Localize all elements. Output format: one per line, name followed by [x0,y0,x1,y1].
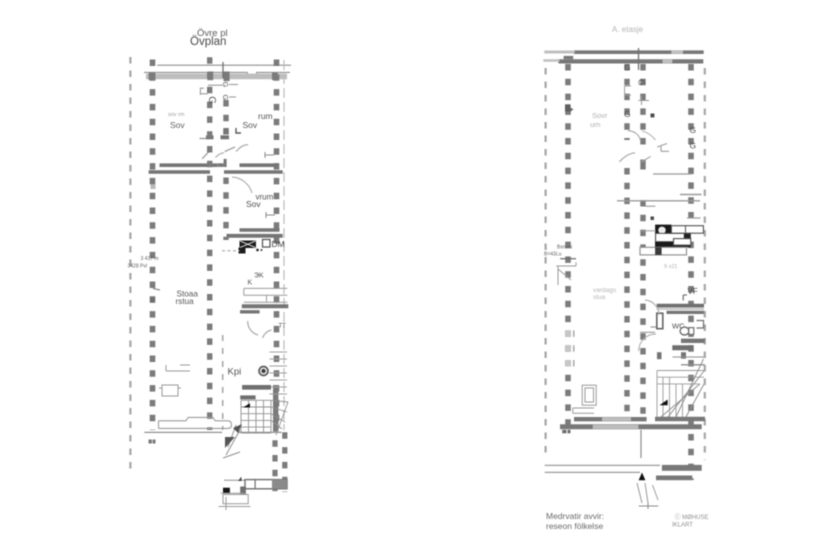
svg-text:sov rm: sov rm [168,112,185,118]
svg-text:3428 Pvl: 3428 Pvl [128,264,147,270]
svg-text:ЭK: ЭK [254,273,264,280]
svg-text:Sov: Sov [243,120,258,130]
svg-text:K: K [248,280,253,287]
svg-text:rum: rum [258,111,273,121]
svg-text:TT: TT [279,324,287,330]
svg-text:Sov: Sov [170,120,185,130]
svg-text:VF: VF [688,287,698,296]
svg-text:G: G [637,79,647,86]
svg-text:Sovr: Sovr [592,111,608,120]
svg-text:reseon fölkelse: reseon fölkelse [546,521,603,531]
svg-text:G: G [206,96,217,104]
svg-text:3 417 m: 3 417 m [141,256,159,262]
svg-text:ⓒ MØHUSE: ⓒ MØHUSE [675,513,709,521]
svg-text:rstua: rstua [176,297,195,306]
svg-text:Bxruxs: Bxruxs [557,244,573,250]
svg-text:B=43Lu: B=43Lu [544,252,562,258]
svg-text:DM: DM [272,239,285,249]
svg-text:G: G [624,109,631,119]
svg-text:IKLART: IKLART [672,523,693,529]
svg-text:Medrvatir avvir:: Medrvatir avvir: [546,511,604,521]
svg-text:9 x21: 9 x21 [664,264,677,270]
svg-text:G: G [221,95,230,101]
svg-text:Kpi: Kpi [228,367,242,378]
svg-text:G: G [690,141,697,151]
svg-text:vardags: vardags [593,287,617,294]
svg-text:Sov: Sov [246,199,261,209]
svg-text:G: G [690,125,697,135]
svg-text:G: G [624,63,631,73]
svg-text:um: um [590,120,600,129]
svg-text:A. etasje: A. etasje [612,25,644,34]
svg-text:G: G [221,82,230,88]
svg-text:stua: stua [593,294,606,301]
svg-text:Övplan: Övplan [190,36,226,48]
